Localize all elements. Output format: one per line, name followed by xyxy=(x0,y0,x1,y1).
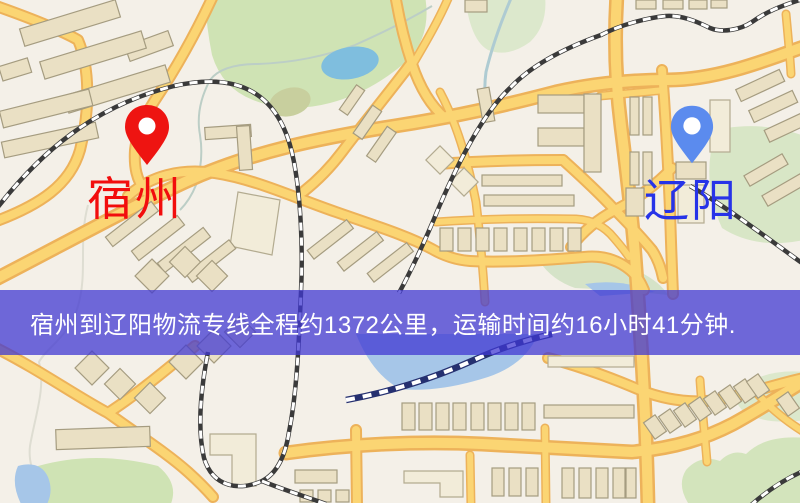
destination-pin-icon xyxy=(669,103,715,166)
map-canvas xyxy=(0,0,800,503)
destination-label: 辽阳 xyxy=(644,178,738,223)
origin-pin-icon xyxy=(123,103,171,167)
route-info-text: 宿州到辽阳物流专线全程约1372公里，运输时间约16小时41分钟. xyxy=(0,305,736,340)
logistics-route-map: 宿州 辽阳 宿州到辽阳物流专线全程约1372公里，运输时间约16小时41分钟. xyxy=(0,0,800,503)
route-info-banner: 宿州到辽阳物流专线全程约1372公里，运输时间约16小时41分钟. xyxy=(0,290,800,355)
origin-label: 宿州 xyxy=(87,176,183,222)
destination-marker[interactable] xyxy=(669,103,715,166)
origin-marker[interactable] xyxy=(123,103,171,167)
